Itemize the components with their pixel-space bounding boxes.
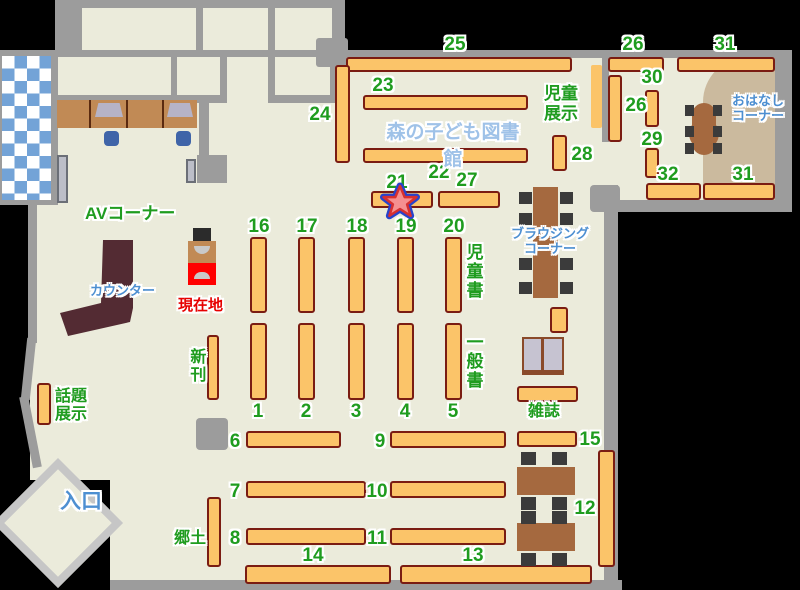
shelf-2-number: 2	[294, 402, 318, 421]
shelf-10-number: 10	[364, 482, 390, 501]
shelf-30-number: 30	[637, 68, 667, 87]
shelf-17-number: 17	[292, 217, 322, 236]
reading-chair-icon	[552, 511, 567, 524]
shelf-25-number: 25	[440, 35, 470, 54]
label-topic-display: 話題 展示	[55, 388, 87, 425]
shelf-14	[245, 565, 391, 584]
shelf-31-top-number: 31	[710, 35, 740, 54]
story-chair-icon	[713, 105, 722, 116]
shelf-27	[438, 191, 500, 208]
shelf-19	[397, 237, 414, 313]
shelf-5	[445, 323, 462, 400]
shelf-9	[390, 431, 506, 448]
shelf-14-number: 14	[298, 546, 328, 565]
shelf-26-vertical-number: 26	[622, 96, 650, 115]
label-new-books: 新刊	[186, 348, 204, 384]
shelf-8-number: 8	[226, 529, 244, 548]
shelf-local	[207, 497, 221, 567]
shelf-6-number: 6	[226, 432, 244, 451]
shelf-new-books	[207, 335, 219, 400]
shelf-11-number: 11	[364, 529, 390, 548]
label-general-books: 一般書	[463, 333, 483, 390]
shelf-32	[646, 183, 701, 200]
shelf-24-number: 24	[305, 105, 335, 124]
shelf-1	[250, 323, 267, 400]
label-story-line1: おはなし	[732, 94, 784, 109]
shelf-25	[346, 57, 572, 72]
browsing-chair-icon	[519, 258, 532, 270]
shelf-1-number: 1	[246, 402, 270, 421]
shelf-6	[246, 431, 341, 448]
shelf-13	[400, 565, 592, 584]
browsing-chair-icon	[560, 213, 573, 225]
reading-chair-icon	[552, 553, 567, 566]
shelf-children-display	[591, 65, 602, 128]
label-browsing-line1: ブラウジング	[500, 227, 600, 242]
shelf-24	[335, 65, 350, 163]
shelf-9-number: 9	[371, 432, 389, 451]
shelf-4	[397, 323, 414, 400]
label-story-line2: コーナー	[732, 109, 784, 124]
shelf-4-number: 4	[393, 402, 417, 421]
shelf-10	[390, 481, 506, 498]
reading-table-2	[517, 523, 575, 551]
shelf-26-top-number: 26	[618, 35, 648, 54]
shelf-small-browsing	[550, 307, 568, 333]
shelf-26-vertical	[608, 75, 622, 142]
label-entrance: 入口	[60, 490, 102, 514]
reading-chair-icon	[552, 497, 567, 510]
browsing-chair-icon	[560, 192, 573, 204]
kiosk-base-slot	[194, 272, 210, 279]
browsing-chair-icon	[519, 192, 532, 204]
shelf-28-number: 28	[568, 145, 596, 164]
magazine-cabinet-divider	[541, 339, 544, 372]
label-counter: カウンター	[90, 284, 155, 299]
story-chair-icon	[713, 143, 722, 154]
reading-chair-icon	[521, 511, 536, 524]
shelf-8	[246, 528, 366, 545]
reading-chair-icon	[521, 497, 536, 510]
browsing-chair-icon	[519, 213, 532, 225]
library-floor-map: 25 26 31 23 24 22 21 27 30 26 29 28 32 3…	[0, 0, 800, 590]
browsing-chair-icon	[560, 258, 573, 270]
shelf-16	[250, 237, 267, 313]
story-chair-icon	[713, 126, 722, 137]
label-children-display-line2: 展示	[544, 104, 578, 124]
shelf-magazines	[517, 386, 578, 402]
shelf-16-number: 16	[244, 217, 274, 236]
label-current-location: 現在地	[178, 294, 223, 315]
shelf-17	[298, 237, 315, 313]
label-topic-line2: 展示	[55, 406, 87, 424]
shelf-18-number: 18	[342, 217, 372, 236]
shelf-29-number: 29	[637, 130, 667, 149]
shelf-31-bottom	[703, 183, 775, 200]
shelf-13-number: 13	[458, 546, 488, 565]
shelf-3	[348, 323, 365, 400]
shelf-11	[390, 528, 506, 545]
shelf-31-bottom-number: 31	[728, 165, 758, 184]
label-children-books: 児童書	[463, 243, 483, 300]
shelf-27-number: 27	[452, 171, 482, 190]
shelf-19-number: 19	[391, 217, 421, 236]
shelf-topic-display	[37, 383, 51, 425]
reading-table-1	[517, 467, 575, 495]
shelf-20-number: 20	[439, 217, 469, 236]
story-chair-icon	[685, 126, 694, 137]
label-av-corner: AVコーナー	[85, 204, 175, 224]
label-children-display-line1: 児童	[544, 84, 578, 104]
shelf-12-number: 12	[572, 499, 598, 518]
shelf-7-number: 7	[226, 482, 244, 501]
map-title: 森の子ども図書館	[378, 117, 528, 171]
label-browsing-line2: コーナー	[500, 242, 600, 257]
shelf-21	[371, 191, 433, 208]
shelf-15	[517, 431, 577, 447]
browsing-chair-icon	[519, 282, 532, 294]
label-story-corner: おはなし コーナー	[732, 94, 784, 124]
shelf-20	[445, 237, 462, 313]
browsing-chair-icon	[560, 282, 573, 294]
story-chair-icon	[685, 143, 694, 154]
shelf-15-number: 15	[577, 430, 603, 449]
shelf-21-number: 21	[382, 173, 412, 192]
story-chair-icon	[685, 105, 694, 116]
label-browsing-corner: ブラウジング コーナー	[500, 227, 600, 257]
reading-chair-icon	[552, 452, 567, 465]
shelf-31-top	[677, 57, 775, 72]
label-local-books: 郷土	[174, 530, 206, 548]
label-topic-line1: 話題	[55, 388, 87, 406]
kiosk-top	[193, 228, 211, 241]
label-magazines: 雑誌	[528, 403, 560, 421]
label-children-display: 児童 展示	[544, 84, 578, 123]
reading-chair-icon	[521, 553, 536, 566]
shelf-18	[348, 237, 365, 313]
shelf-7	[246, 481, 366, 498]
shelf-5-number: 5	[441, 402, 465, 421]
shelf-32-number: 32	[653, 165, 683, 184]
shelf-2	[298, 323, 315, 400]
shelf-23-number: 23	[368, 76, 398, 95]
shelf-28	[552, 135, 567, 171]
shelf-12	[598, 450, 615, 567]
reading-chair-icon	[521, 452, 536, 465]
shelf-3-number: 3	[344, 402, 368, 421]
shelf-23	[363, 95, 528, 110]
